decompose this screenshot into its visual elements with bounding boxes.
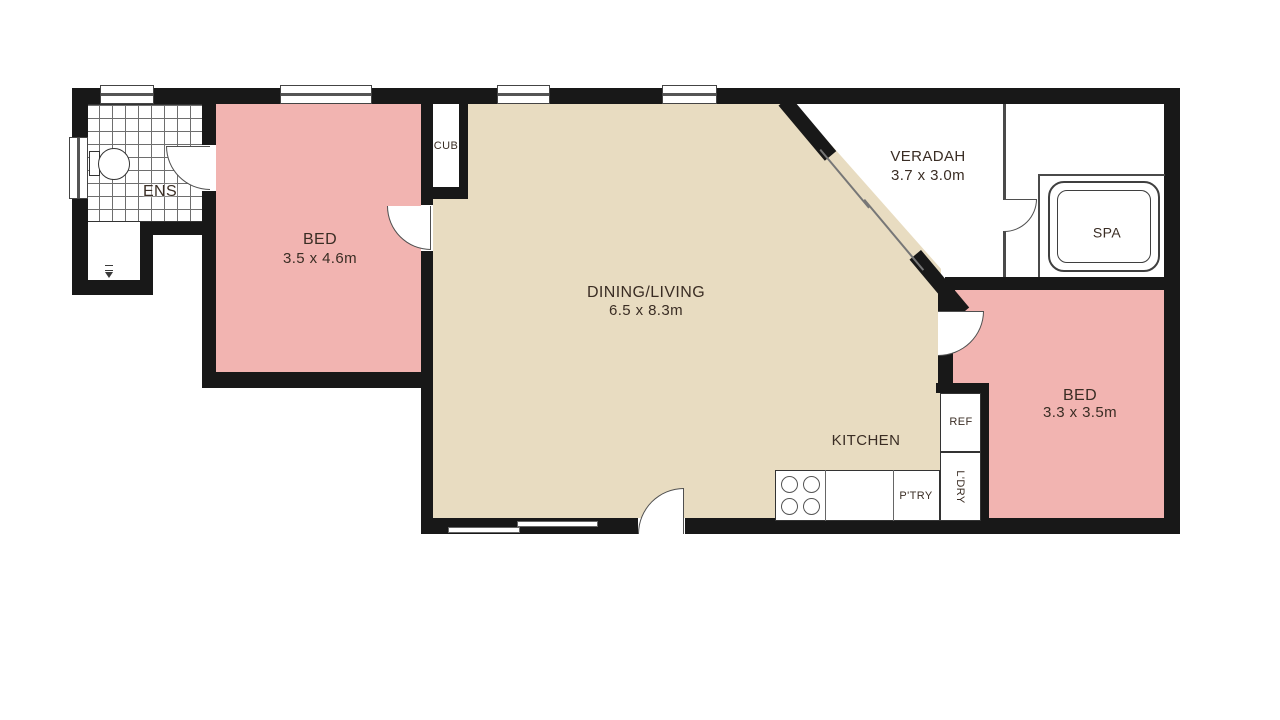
counter-divider-2 — [893, 470, 894, 521]
patio-sliding-door-panel1 — [448, 527, 520, 533]
entry-marker-icon — [105, 265, 113, 271]
veradah-spa-wall-lower — [1003, 231, 1006, 277]
entry-arrow-icon — [105, 272, 113, 278]
niche-bottom-wall — [72, 280, 153, 295]
window-ens — [100, 85, 154, 104]
stove-burner-4 — [803, 498, 820, 515]
kitchen-label: KITCHEN — [832, 433, 901, 450]
patio-sliding-door-panel2 — [517, 521, 598, 527]
veradah-spa-wall-upper — [1003, 104, 1006, 200]
bed1-dining-wall — [421, 104, 433, 534]
ldry-label: L'DRY — [954, 470, 966, 503]
window-dining-1 — [497, 85, 550, 104]
floor-plan: ENS BED 3.5 x 4.6m CUB DINING/LIVING 6.5… — [0, 0, 1280, 720]
spa-platform-edge-v — [1038, 174, 1040, 277]
bed2-label: BED — [1063, 387, 1097, 405]
dining-label: DINING/LIVING — [587, 284, 705, 302]
cub-bottom-wall — [421, 187, 468, 199]
top-wall — [72, 88, 1180, 104]
ens-label: ENS — [143, 183, 177, 201]
spa-label: SPA — [1093, 225, 1121, 240]
veradah-label: VERADAH — [890, 149, 965, 166]
toilet-bowl — [98, 148, 130, 180]
bed1-bottom-wall — [202, 372, 433, 388]
stove-burner-3 — [781, 498, 798, 515]
dining-dims: 6.5 x 8.3m — [609, 303, 683, 320]
cub-label: CUB — [434, 140, 458, 152]
bed2-top-wall — [945, 277, 1180, 290]
bed2-dims: 3.3 x 3.5m — [1043, 405, 1117, 422]
stove-burner-1 — [781, 476, 798, 493]
window-dining-2 — [662, 85, 717, 104]
bed1-label: BED — [303, 231, 337, 249]
bed1-dims: 3.5 x 4.6m — [283, 251, 357, 268]
ref-label: REF — [949, 416, 972, 428]
ref-right-wall — [981, 390, 989, 523]
spa-platform-edge-h — [1038, 174, 1165, 176]
stove-burner-2 — [803, 476, 820, 493]
veradah-dims: 3.7 x 3.0m — [891, 168, 965, 185]
window-bed1 — [280, 85, 372, 104]
entry-niche — [88, 223, 140, 280]
right-wall — [1164, 88, 1180, 534]
window-ens-side — [69, 137, 88, 199]
ptry-label: P'TRY — [899, 490, 932, 502]
cub-right-wall — [459, 104, 468, 199]
under-tile-wall — [140, 222, 203, 235]
counter-divider-1 — [825, 470, 826, 521]
